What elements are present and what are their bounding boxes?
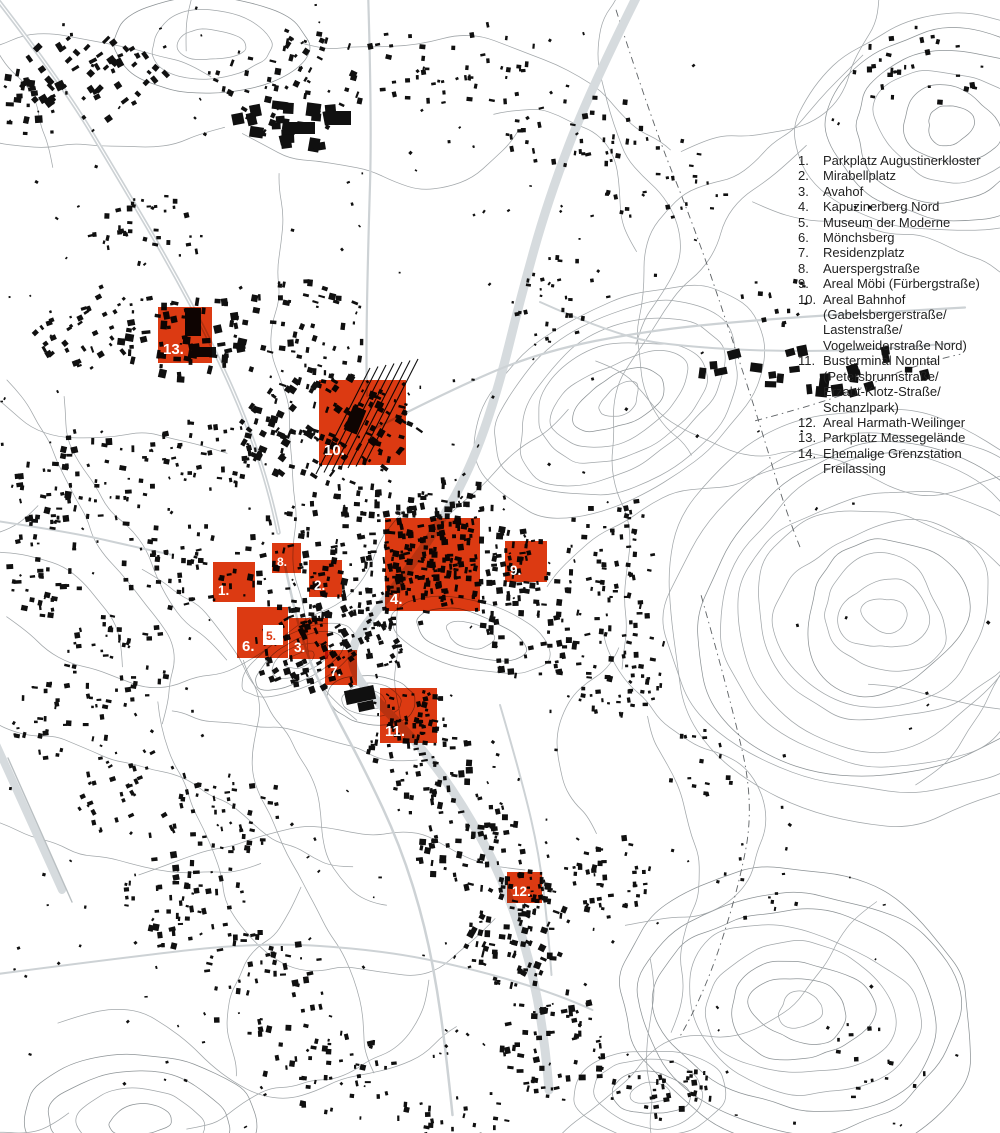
- legend-item-10: 10.Areal Bahnhof (Gabelsbergerstraße/ La…: [798, 292, 998, 354]
- legend-item-number: 9.: [798, 276, 823, 291]
- legend-item-number: 5.: [798, 215, 823, 230]
- marker-label-5: 5.: [266, 629, 276, 643]
- legend-item-7: 7.Residenzplatz: [798, 245, 998, 260]
- legend-item-label: Museum der Moderne: [823, 215, 950, 230]
- legend-item-number: 2.: [798, 168, 823, 183]
- marker-label-9: 9.: [510, 563, 521, 578]
- marker-label-1: 1.: [218, 583, 229, 598]
- legend-item-1: 1.Parkplatz Augustinerkloster: [798, 153, 998, 168]
- legend-item-label: Parkplatz Messegelände: [823, 430, 965, 445]
- legend-item-9: 9.Areal Möbi (Fürbergstraße): [798, 276, 998, 291]
- marker-label-2: 2.: [314, 578, 325, 593]
- legend: 1.Parkplatz Augustinerkloster2.Mirabellp…: [798, 153, 998, 477]
- marker-label-12: 12.: [512, 884, 531, 899]
- legend-item-label: Areal Bahnhof (Gabelsbergerstraße/ Laste…: [823, 292, 967, 354]
- legend-item-14: 14.Ehemalige Grenzstation Freilassing: [798, 446, 998, 477]
- marker-label-3: 3.: [294, 640, 305, 655]
- legend-item-4: 4.Kapuzinerberg Nord: [798, 199, 998, 214]
- legend-item-label: Ehemalige Grenzstation Freilassing: [823, 446, 962, 477]
- legend-item-number: 7.: [798, 245, 823, 260]
- marker-label-4: 4.: [390, 591, 403, 608]
- legend-item-3: 3.Avahof: [798, 184, 998, 199]
- legend-item-label: Parkplatz Augustinerkloster: [823, 153, 981, 168]
- legend-item-label: Auerspergstraße: [823, 261, 920, 276]
- legend-item-number: 12.: [798, 415, 823, 430]
- legend-item-number: 1.: [798, 153, 823, 168]
- legend-item-number: 11.: [798, 353, 823, 415]
- legend-item-label: Areal Harmath-Weilinger: [823, 415, 965, 430]
- legend-item-13: 13.Parkplatz Messegelände: [798, 430, 998, 445]
- legend-item-number: 4.: [798, 199, 823, 214]
- legend-item-2: 2.Mirabellplatz: [798, 168, 998, 183]
- legend-item-label: Avahof: [823, 184, 863, 199]
- legend-item-11: 11.Busterminal Nonntal (Petersbrunnstraß…: [798, 353, 998, 415]
- legend-item-number: 3.: [798, 184, 823, 199]
- legend-item-label: Areal Möbi (Fürbergstraße): [823, 276, 980, 291]
- marker-label-13: 13.: [163, 341, 184, 358]
- legend-item-5: 5.Museum der Moderne: [798, 215, 998, 230]
- legend-item-label: Mirabellplatz: [823, 168, 896, 183]
- marker-label-7: 7.: [330, 664, 341, 679]
- legend-item-label: Kapuzinerberg Nord: [823, 199, 939, 214]
- legend-item-number: 14.: [798, 446, 823, 477]
- legend-item-number: 13.: [798, 430, 823, 445]
- marker-label-11: 11.: [385, 723, 405, 740]
- legend-item-label: Residenzplatz: [823, 245, 905, 260]
- map-page: 1.2.3.4.5.6.7.8.9.10.11.12.13. 1.Parkpla…: [0, 0, 1000, 1133]
- legend-item-8: 8.Auerspergstraße: [798, 261, 998, 276]
- legend-item-number: 10.: [798, 292, 823, 354]
- legend-item-label: Mönchsberg: [823, 230, 895, 245]
- legend-item-number: 8.: [798, 261, 823, 276]
- legend-item-number: 6.: [798, 230, 823, 245]
- legend-item-12: 12.Areal Harmath-Weilinger: [798, 415, 998, 430]
- marker-label-10: 10.: [324, 442, 345, 459]
- marker-label-8: 8.: [277, 555, 287, 569]
- legend-item-label: Busterminal Nonntal (Petersbrunnstraße/ …: [823, 353, 941, 415]
- marker-label-6: 6.: [242, 638, 255, 655]
- legend-item-6: 6.Mönchsberg: [798, 230, 998, 245]
